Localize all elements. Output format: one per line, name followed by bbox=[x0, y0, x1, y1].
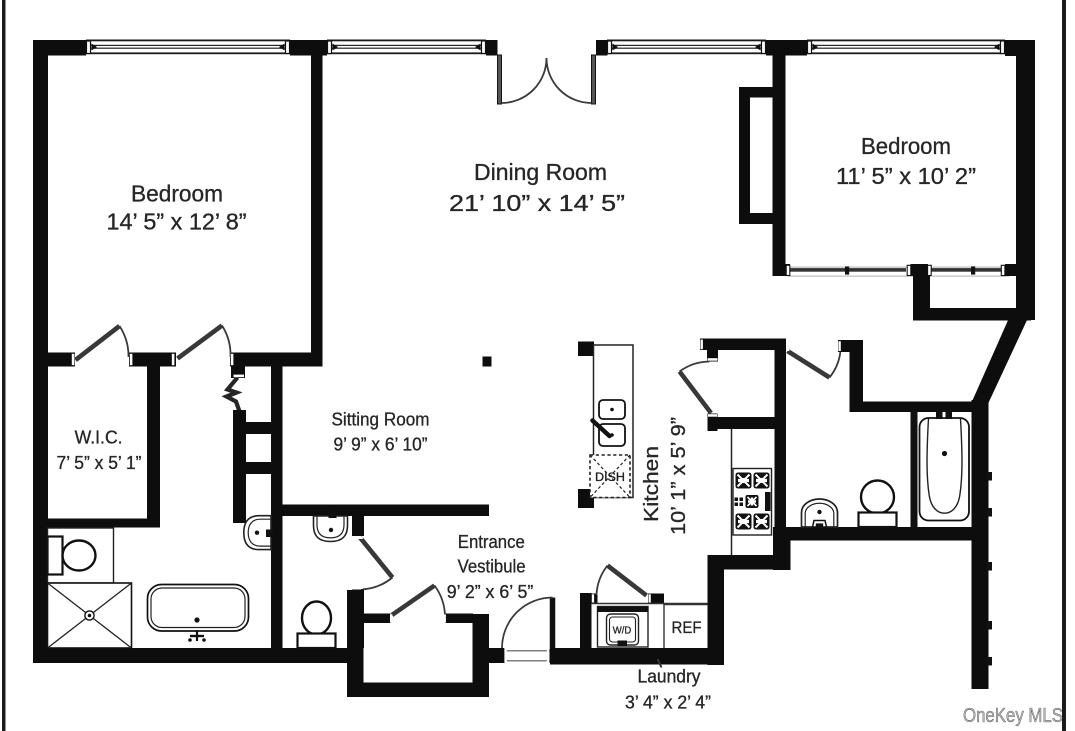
svg-text:Laundry: Laundry bbox=[638, 667, 701, 687]
svg-text:Entrance: Entrance bbox=[458, 531, 525, 552]
svg-text:10’ 1” x 5’ 9”: 10’ 1” x 5’ 9” bbox=[667, 417, 690, 535]
svg-text:3’ 4” x 2’ 4”: 3’ 4” x 2’ 4” bbox=[625, 693, 711, 713]
svg-text:W/D: W/D bbox=[613, 626, 632, 637]
svg-text:REF: REF bbox=[672, 618, 702, 637]
svg-text:Bedroom: Bedroom bbox=[861, 133, 951, 159]
svg-text:DISH: DISH bbox=[595, 472, 625, 484]
svg-text:W.I.C.: W.I.C. bbox=[75, 427, 123, 448]
svg-text:Bedroom: Bedroom bbox=[131, 181, 223, 207]
svg-text:Dining Room: Dining Room bbox=[474, 159, 607, 185]
svg-text:Vestibule: Vestibule bbox=[458, 556, 526, 577]
svg-text:Sitting Room: Sitting Room bbox=[332, 409, 430, 430]
svg-text:11’ 5” x 10’ 2”: 11’ 5” x 10’ 2” bbox=[836, 163, 976, 189]
svg-text:Kitchen: Kitchen bbox=[640, 446, 663, 522]
svg-text:7’ 5” x 5’ 1”: 7’ 5” x 5’ 1” bbox=[57, 452, 142, 473]
svg-text:OneKey MLS: OneKey MLS bbox=[963, 704, 1063, 727]
svg-text:9’ 9” x 6’ 10”: 9’ 9” x 6’ 10” bbox=[334, 434, 428, 455]
svg-text:14’ 5” x 12’ 8”: 14’ 5” x 12’ 8” bbox=[107, 209, 247, 235]
svg-text:21’ 10” x 14’ 5”: 21’ 10” x 14’ 5” bbox=[449, 190, 625, 216]
svg-text:9’ 2” x 6’ 5”: 9’ 2” x 6’ 5” bbox=[447, 581, 534, 602]
